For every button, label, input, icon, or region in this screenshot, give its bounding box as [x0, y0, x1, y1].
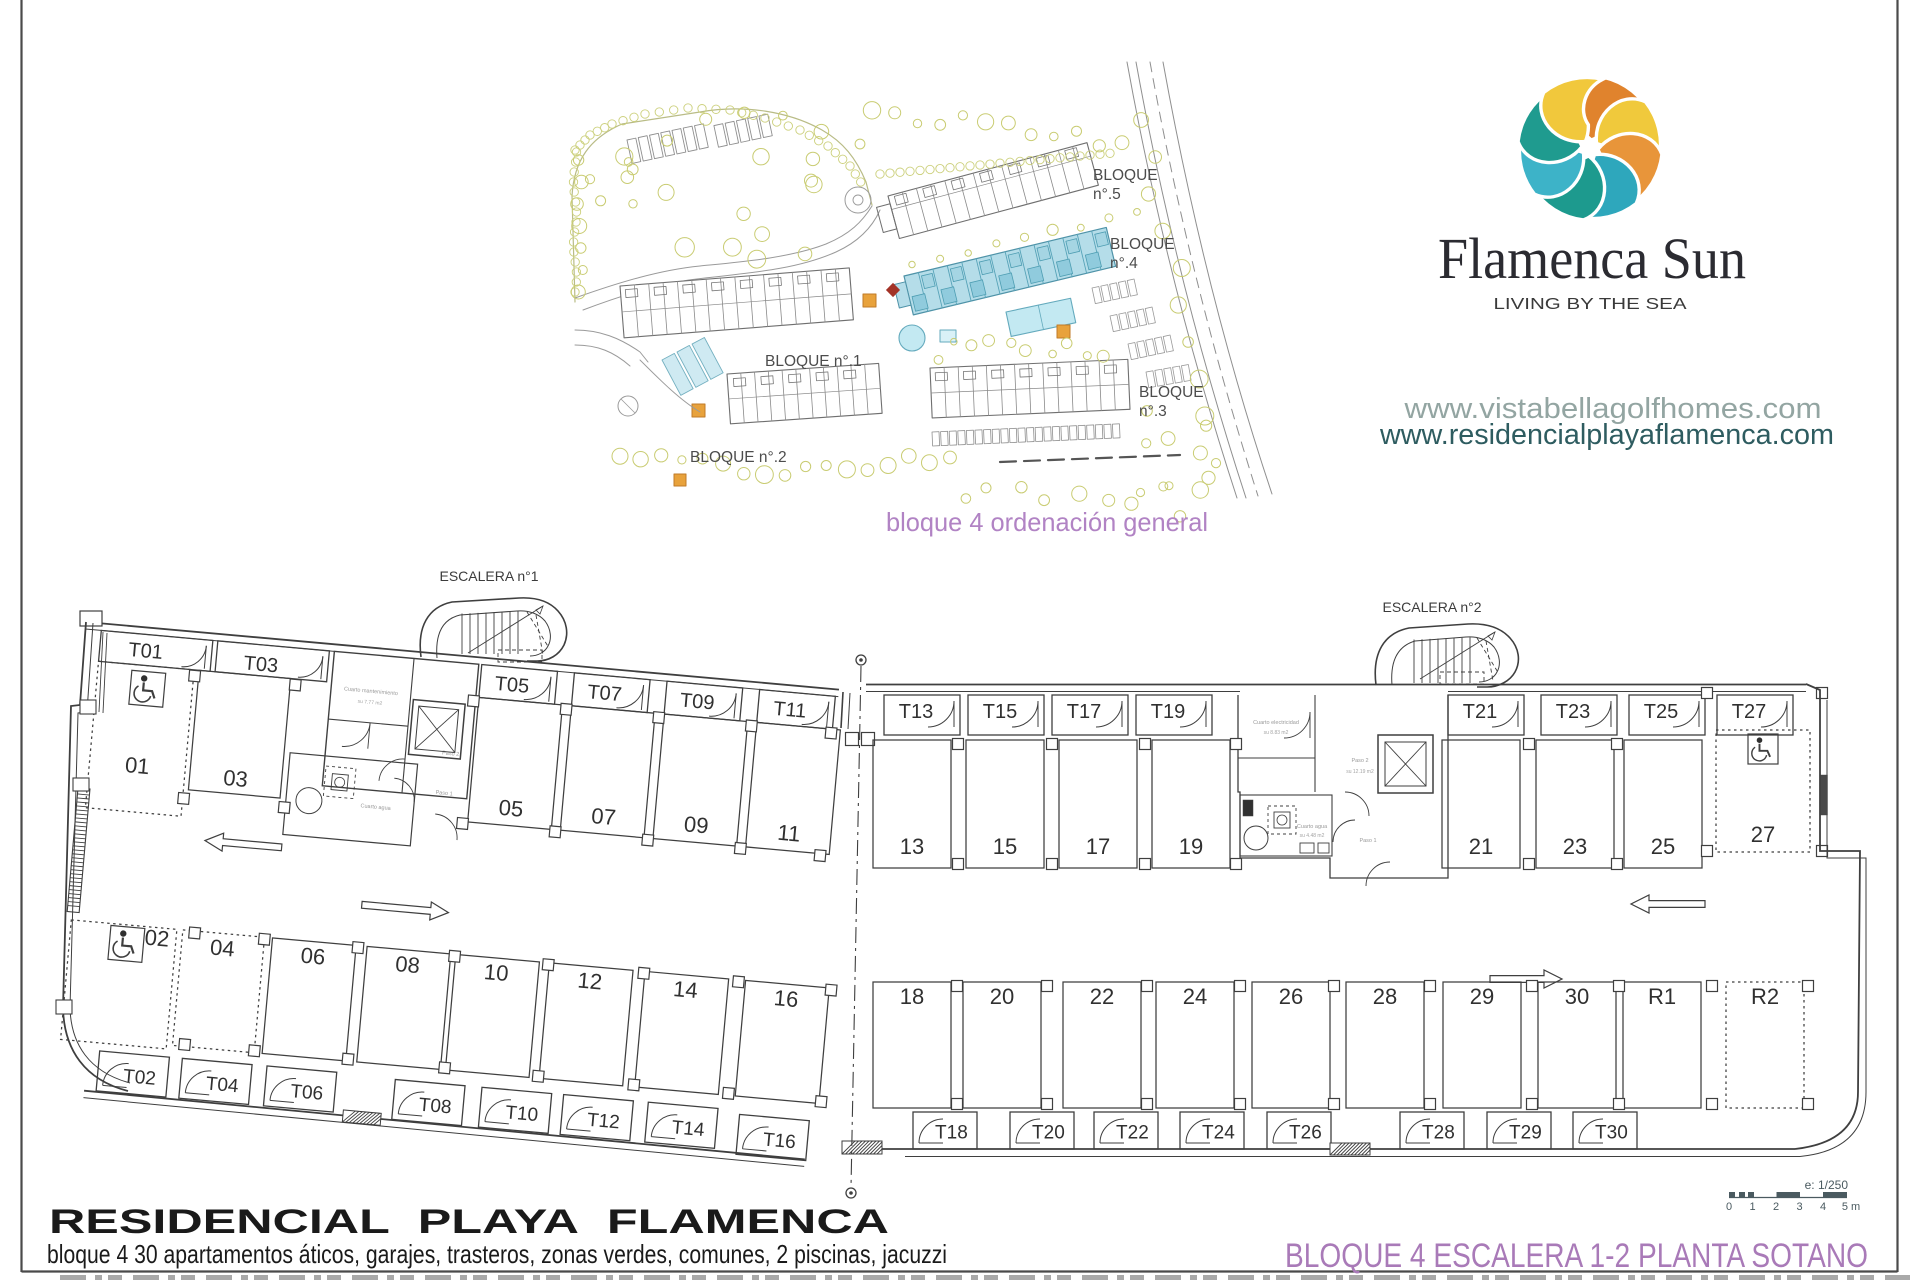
svg-text:0: 0 — [1726, 1201, 1732, 1213]
svg-text:26: 26 — [1279, 984, 1303, 1009]
svg-text:n°.5: n°.5 — [1093, 186, 1121, 203]
svg-text:T12: T12 — [586, 1110, 620, 1134]
svg-text:4: 4 — [1820, 1201, 1826, 1213]
svg-text:T19: T19 — [1151, 701, 1185, 723]
svg-text:su 12.19 m2: su 12.19 m2 — [1346, 769, 1374, 775]
svg-text:LIVING BY THE SEA: LIVING BY THE SEA — [1494, 296, 1687, 313]
svg-text:09: 09 — [683, 811, 710, 838]
svg-text:08: 08 — [394, 951, 421, 978]
svg-text:T01: T01 — [127, 639, 163, 664]
svg-text:29: 29 — [1470, 984, 1494, 1009]
svg-text:18: 18 — [900, 984, 924, 1009]
svg-text:T28: T28 — [1422, 1123, 1455, 1144]
svg-text:16: 16 — [773, 985, 800, 1012]
svg-text:T26: T26 — [1289, 1123, 1322, 1144]
svg-text:T25: T25 — [1644, 701, 1678, 723]
svg-text:10: 10 — [483, 959, 510, 986]
svg-text:bloque 4 ordenación general: bloque 4 ordenación general — [886, 507, 1208, 537]
svg-text:T22: T22 — [1116, 1123, 1149, 1144]
svg-text:15: 15 — [993, 834, 1017, 859]
svg-text:06: 06 — [300, 943, 327, 970]
svg-text:su 4.48 m2: su 4.48 m2 — [1300, 833, 1325, 839]
svg-text:13: 13 — [900, 834, 924, 859]
svg-text:T16: T16 — [762, 1129, 796, 1153]
svg-text:T02: T02 — [122, 1066, 156, 1090]
svg-text:T29: T29 — [1509, 1123, 1542, 1144]
svg-text:T24: T24 — [1202, 1123, 1235, 1144]
svg-text:14: 14 — [672, 976, 699, 1003]
svg-text:T20: T20 — [1032, 1123, 1065, 1144]
svg-text:T11: T11 — [772, 698, 807, 723]
svg-text:R2: R2 — [1751, 984, 1779, 1009]
svg-text:BLOQUE: BLOQUE — [1110, 236, 1175, 253]
svg-text:11: 11 — [776, 820, 801, 847]
svg-text:BLOQUE n°.2: BLOQUE n°.2 — [690, 449, 787, 466]
svg-text:T27: T27 — [1732, 701, 1766, 723]
svg-text:e: 1/250: e: 1/250 — [1805, 1178, 1849, 1192]
svg-text:02: 02 — [144, 925, 171, 952]
svg-text:20: 20 — [990, 984, 1014, 1009]
svg-text:T09: T09 — [679, 689, 715, 714]
svg-text:BLOQUE: BLOQUE — [1093, 167, 1158, 184]
svg-text:BLOQUE: BLOQUE — [1139, 384, 1204, 401]
svg-text:T05: T05 — [494, 673, 530, 698]
svg-text:T23: T23 — [1556, 701, 1590, 723]
svg-text:01: 01 — [124, 752, 151, 779]
svg-text:07: 07 — [590, 803, 617, 830]
svg-text:Cuarto agua: Cuarto agua — [1297, 824, 1328, 830]
svg-text:T03: T03 — [243, 652, 279, 677]
svg-text:Flamenca Sun: Flamenca Sun — [1438, 226, 1746, 291]
svg-text:n°.3: n°.3 — [1139, 403, 1167, 420]
svg-text:T18: T18 — [935, 1123, 968, 1144]
svg-text:2: 2 — [1773, 1201, 1779, 1213]
svg-text:T17: T17 — [1067, 701, 1101, 723]
svg-text:T30: T30 — [1595, 1123, 1628, 1144]
svg-text:RESIDENCIAL PLAYA FLAMENCA: RESIDENCIAL PLAYA FLAMENCA — [49, 1203, 889, 1241]
svg-text:ESCALERA n°1: ESCALERA n°1 — [440, 568, 539, 584]
svg-text:T07: T07 — [586, 681, 622, 706]
svg-text:25: 25 — [1651, 834, 1675, 859]
svg-text:n°.4: n°.4 — [1110, 255, 1138, 272]
svg-text:1: 1 — [1749, 1201, 1755, 1213]
svg-text:bloque 4 30 apartamentos ático: bloque 4 30 apartamentos áticos, garajes… — [47, 1239, 947, 1269]
svg-text:T21: T21 — [1463, 701, 1497, 723]
svg-text:BLOQUE 4 ESCALERA 1-2 PLANTA S: BLOQUE 4 ESCALERA 1-2 PLANTA SOTANO — [1285, 1237, 1868, 1275]
svg-text:T06: T06 — [290, 1081, 324, 1105]
svg-text:3: 3 — [1796, 1201, 1802, 1213]
svg-text:12: 12 — [577, 967, 604, 994]
svg-text:T13: T13 — [899, 701, 933, 723]
svg-text:24: 24 — [1183, 984, 1207, 1009]
svg-text:23: 23 — [1563, 834, 1587, 859]
svg-text:T14: T14 — [671, 1117, 706, 1141]
svg-text:BLOQUE n°.1: BLOQUE n°.1 — [765, 353, 862, 370]
svg-text:Cuarto electricidad: Cuarto electricidad — [1253, 720, 1299, 726]
svg-text:28: 28 — [1373, 984, 1397, 1009]
svg-text:27: 27 — [1751, 822, 1775, 847]
svg-text:R1: R1 — [1648, 984, 1676, 1009]
svg-text:T15: T15 — [983, 701, 1017, 723]
svg-text:T04: T04 — [205, 1073, 240, 1097]
svg-text:ESCALERA n°2: ESCALERA n°2 — [1383, 599, 1482, 615]
svg-text:21: 21 — [1469, 834, 1493, 859]
svg-text:5 m: 5 m — [1842, 1201, 1860, 1213]
svg-text:03: 03 — [222, 765, 249, 792]
svg-text:T08: T08 — [418, 1095, 452, 1119]
svg-text:www.residencialplayaflamenca.c: www.residencialplayaflamenca.com — [1379, 419, 1834, 451]
svg-text:30: 30 — [1565, 984, 1589, 1009]
svg-text:Paso 1: Paso 1 — [1359, 838, 1376, 844]
svg-text:su 8.83 m2: su 8.83 m2 — [1264, 730, 1289, 736]
svg-text:Paso 2: Paso 2 — [1351, 758, 1368, 764]
svg-text:T10: T10 — [504, 1102, 538, 1126]
svg-text:17: 17 — [1086, 834, 1110, 859]
svg-text:22: 22 — [1090, 984, 1114, 1009]
svg-text:05: 05 — [498, 795, 525, 822]
svg-text:19: 19 — [1179, 834, 1203, 859]
svg-text:04: 04 — [209, 934, 236, 961]
